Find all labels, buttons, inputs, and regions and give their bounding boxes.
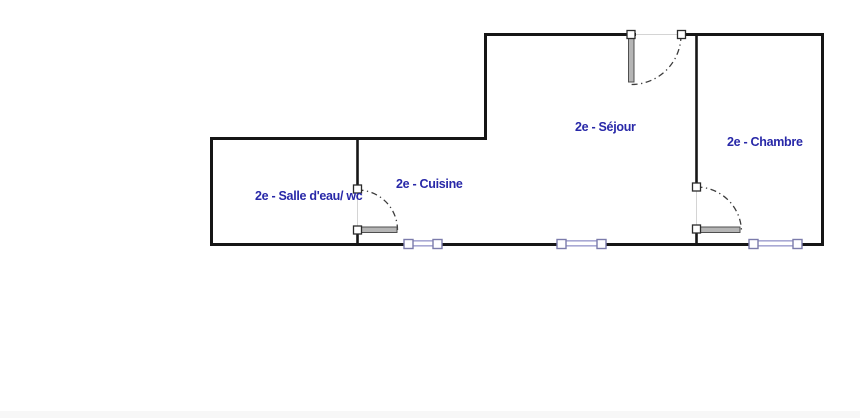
door-swing-arc <box>697 187 742 232</box>
window-sejour <box>557 239 606 249</box>
door-hinge-square <box>354 226 362 234</box>
room-label-cuisine: 2e - Cuisine <box>396 177 463 191</box>
window-cuisine <box>404 239 442 249</box>
door-leaf <box>360 227 397 233</box>
floorplan-drawing <box>0 0 860 418</box>
window-end-square <box>749 240 758 249</box>
door-leaf <box>629 35 635 82</box>
door-chambre <box>693 183 742 233</box>
door-hinge-square <box>627 31 635 39</box>
window-end-square <box>557 240 566 249</box>
door-leaf <box>699 227 740 233</box>
door-swing-arc <box>632 35 682 85</box>
window-end-square <box>404 240 413 249</box>
window-end-square <box>793 240 802 249</box>
floorplan-canvas: 2e - Séjour 2e - Chambre 2e - Cuisine 2e… <box>0 0 860 418</box>
door-hinge-square <box>693 225 701 233</box>
door-sejour-entry <box>627 30 686 85</box>
window-chambre <box>749 239 802 249</box>
bottom-edge-strip <box>0 411 860 418</box>
door-jamb-square <box>678 31 686 39</box>
room-label-sejour: 2e - Séjour <box>575 120 636 134</box>
room-label-chambre: 2e - Chambre <box>727 135 803 149</box>
window-end-square <box>433 240 442 249</box>
room-label-salle-deau-wc: 2e - Salle d'eau/ wc <box>255 189 362 203</box>
door-swing-arc <box>358 190 398 230</box>
window-end-square <box>597 240 606 249</box>
door-jamb-square <box>693 183 701 191</box>
